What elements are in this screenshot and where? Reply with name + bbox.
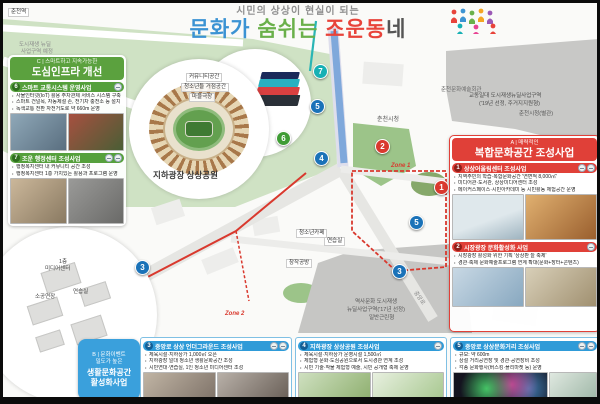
label-chuncheon-station: 춘천역 (8, 8, 29, 17)
label-underground-plaza-park: 지하광장 상상공원 (153, 172, 218, 179)
label-gyodong-zone-line2: ('19년 선정, 주거지지원형) (479, 101, 540, 108)
photo-ref-icon (114, 154, 122, 162)
label-youth-space: 청소년들 거점공간 (181, 83, 229, 92)
label-history-zone-line2: 뉴딜사업구역('17년 선정) (347, 307, 405, 314)
project-1-bullets: 지역주민의 학습·복합문화공간 '연면적 8,000㎡' 미디어관·도서관, 상… (452, 174, 597, 193)
map-marker-2: 2 (375, 139, 390, 154)
project-6-number: 6 (12, 83, 20, 91)
people-cluster-icon (449, 7, 501, 35)
panel-project-5: 5 중앙로 상상문화거리 조성사업 규모: 약 600m 상설 거리공연장 및 … (450, 337, 600, 400)
project-4-photos (298, 372, 444, 400)
poster-subtitle: 시민의 상상이 현실이 되는 (133, 6, 463, 18)
panel-b-label: B | 문화이벤트 밀도가 높은 생활문화공간 활성화사업 (78, 339, 140, 400)
label-history-zone-line1: 역사문화 도시재생 (355, 299, 397, 306)
project-6-bullets: 사물인터넷(IoT) 활용 주차관제 서비스 시스템 구축 스마트 건널목, 자… (10, 93, 124, 112)
photo-dance-class (217, 372, 290, 400)
panel-c-header: C | 스마트하고 지속가능한 도심인프라 개선 (10, 57, 124, 80)
bullet: 녹색교통 전환 자전거도로 약 660m 운영 (12, 106, 123, 112)
label-history-zone-line3: 일반근린형 (369, 315, 394, 322)
label-floor1: 1층 (59, 259, 67, 266)
photo-center-exterior (452, 194, 524, 240)
project-7-title: 조운 행정센터 조성사업 (22, 154, 104, 163)
panel-c-infrastructure: C | 스마트하고 지속가능한 도심인프라 개선 6 스마트 교통시스템 운영사… (8, 55, 126, 226)
project-5-number: 5 (455, 342, 463, 350)
photo-night-lights (453, 372, 548, 400)
label-media-center: 미디어센터 (45, 266, 70, 273)
project-3-photos (143, 372, 289, 400)
map-marker-7: 7 (313, 64, 328, 79)
label-craft-workshop: 창작공방 (286, 259, 312, 268)
label-community-space: 커뮤니티공간 (186, 73, 222, 82)
photo-ref-icon (578, 342, 586, 350)
photo-park-render-1 (298, 372, 371, 400)
project-2-title: 시장광장 문화활성화 사업 (464, 243, 586, 252)
photo-street-event (549, 372, 597, 400)
label-art-hall: 춘천문화예술회관 (441, 87, 481, 94)
photo-community-hall (68, 178, 125, 224)
project-2-bullets: 시장광장 활성화 위한 기획 '상상판 늘 축제' 경관·축제 문화예술프로그램… (452, 253, 597, 266)
title-word-ne: 네 (386, 18, 406, 41)
panel-b-title-1: 생활문화공간 (78, 368, 140, 378)
photo-ref-icon (587, 342, 595, 350)
panel-project-3: 3 중앙로 상상 언더그라운드 조성사업 체육시설·지하상가 1,000㎡ 오픈… (140, 337, 292, 400)
photo-ref-icon (114, 83, 122, 91)
project-4-bullets: 체육시설·지하상가 운영시설 1,500㎡ 체험형 문화·도심공원으로서 도시경… (298, 352, 444, 371)
photo-ref-icon (587, 243, 595, 251)
photo-ref-icon (270, 342, 278, 350)
label-cityhall-annex: 춘천시청(별관) (519, 111, 553, 118)
project-6-pill: 6 스마트 교통시스템 운영사업 (10, 82, 124, 92)
photo-center-interior (525, 194, 597, 240)
photo-ref-icon (578, 164, 586, 172)
project-4-title: 지하광장 상상공원 조성사업 (310, 342, 433, 351)
building-teal-floor (258, 79, 300, 87)
building-red-floor (256, 87, 300, 95)
building-roof (260, 72, 300, 79)
project-3-title: 중앙로 상상 언더그라운드 조성사업 (155, 342, 269, 351)
photo-smart-traffic (10, 113, 67, 151)
project-6-title: 스마트 교통시스템 운영사업 (22, 83, 113, 92)
photo-ref-icon (434, 342, 442, 350)
label-annotation-line1: 도시재생 뉴딜 (19, 42, 51, 49)
project-3-bullets: 체육시설·지하상가 1,000㎡ 오픈 지하광장 일대 청소년 생활문화공간 조… (143, 352, 289, 371)
panel-b-tagline-1: B | 문화이벤트 (78, 352, 140, 359)
panel-b-tagline-2: 밀도가 높은 (78, 359, 140, 366)
panel-a-header: A | 매력적인 복합문화공간 조성사업 (452, 138, 597, 161)
bullet: 행정복지센터 1층 가치있는 활용과 프로그램 운영 (12, 171, 123, 177)
project-5-photos (453, 372, 597, 400)
poster-title: 문화가 숨쉬는 조운동네 (133, 18, 463, 42)
panel-a-culture-space: A | 매력적인 복합문화공간 조성사업 1 상상어울림센터 조성사업 지역주민… (449, 135, 600, 332)
panel-c-title: 도심인프라 개선 (11, 66, 123, 78)
photo-ref-icon (279, 342, 287, 350)
stadium-stage (185, 121, 213, 137)
map-marker-4: 4 (314, 151, 329, 166)
project-1-pill: 1 상상어울림센터 조성사업 (452, 163, 597, 173)
stadium-field (173, 107, 225, 151)
photo-park-render-2 (372, 372, 445, 400)
project-7-bullets: 행정복지센터 내 커뮤니티 공간 조성 행정복지센터 1층 가치있는 활용과 프… (10, 164, 124, 177)
label-practice-room-east: 연습실 (324, 237, 345, 246)
map-marker-5-south: 5 (409, 215, 424, 230)
project-2-photos (452, 267, 597, 307)
project-5-pill: 5 중앙로 상상문화거리 조성사업 (453, 341, 597, 351)
bullet: 경관·축제 문화예술프로그램 연계 확대(문화+장터+콘텐츠) (454, 260, 596, 266)
photo-market-festival (525, 267, 597, 307)
poster-canvas: 시민의 상상이 현실이 되는 문화가 숨쉬는 조운동네 C | 스마트하고 지속… (0, 0, 600, 404)
title-word-culture: 문화가 (190, 18, 251, 41)
project-5-title: 중앙로 상상문화거리 조성사업 (465, 342, 577, 351)
photo-market-plaza (452, 267, 524, 307)
project-5-bullets: 규모: 약 600m 상설 거리공연장 및 경관·공연장비 조성 각종 문화행사… (453, 352, 597, 371)
panel-project-4: 4 지하광장 상상공원 조성사업 체육시설·지하상가 운영시설 1,500㎡ 체… (295, 337, 447, 400)
label-youth-cafe: 청소년카페 (296, 229, 327, 238)
project-2-number: 2 (454, 243, 462, 251)
photo-meeting-room (10, 178, 67, 224)
title-word-joun: 조운동 (325, 18, 386, 41)
label-zone2: Zone 2 (225, 311, 244, 318)
map-marker-6: 6 (276, 131, 291, 146)
project-7-pill: 7 조운 행정센터 조성사업 (10, 153, 124, 163)
label-village-theater: 마을극장 (189, 93, 215, 102)
panel-c-tagline: C | 스마트하고 지속가능한 (11, 59, 123, 66)
bullet: 메이커스페이스·시민아카데미 등 시민활동 체험공간 운영 (454, 187, 596, 193)
project-1-number: 1 (454, 164, 462, 172)
bullet: 시민연대·연습실, 1인 청소년 미디어센터 조성 (145, 365, 288, 371)
photo-ref-icon (105, 154, 113, 162)
photo-underground-activity (143, 372, 216, 400)
panel-a-title: 복합문화공간 조성사업 (453, 147, 596, 159)
poster-title-block: 시민의 상상이 현실이 되는 문화가 숨쉬는 조운동네 (133, 6, 463, 42)
title-word-breathing: 숨쉬는 (251, 18, 326, 41)
panel-b-title-2: 활성화사업 (78, 378, 140, 388)
bullet: 시민 기술·작물 체험형 예술, 시민 공개형 축제 운영 (300, 365, 443, 371)
label-zone1: Zone 1 (391, 163, 410, 170)
project-2-pill: 2 시장광장 문화활성화 사업 (452, 242, 597, 252)
panel-a-tagline: A | 매력적인 (453, 140, 596, 147)
label-gyodong-zone-line1: 교동일대 도시재생뉴딜사업구역 (469, 93, 541, 100)
project-7-number: 7 (12, 154, 20, 162)
label-practice-room-west: 연습실 (73, 289, 88, 296)
project-1-photos (452, 194, 597, 240)
map-marker-3-east: 3 (392, 264, 407, 279)
map-marker-3-west: 3 (135, 260, 150, 275)
project-6-photos (10, 113, 124, 151)
map-marker-5-north: 5 (310, 99, 325, 114)
map-marker-1: 1 (434, 180, 449, 195)
photo-street-flowers (68, 113, 125, 151)
project-1-title: 상상어울림센터 조성사업 (464, 164, 577, 173)
project-7-photos (10, 178, 124, 224)
project-4-number: 4 (300, 342, 308, 350)
project-3-pill: 3 중앙로 상상 언더그라운드 조성사업 (143, 341, 289, 351)
label-small-concert-hall: 소공연장 (35, 294, 55, 301)
photo-ref-icon (587, 164, 595, 172)
label-cityhall: 춘천시청 (377, 117, 399, 124)
bullet: 각종 문화행사(버스킹·플리마켓 등) 운영 (455, 365, 596, 371)
project-3-number: 3 (145, 342, 153, 350)
project-4-pill: 4 지하광장 상상공원 조성사업 (298, 341, 444, 351)
